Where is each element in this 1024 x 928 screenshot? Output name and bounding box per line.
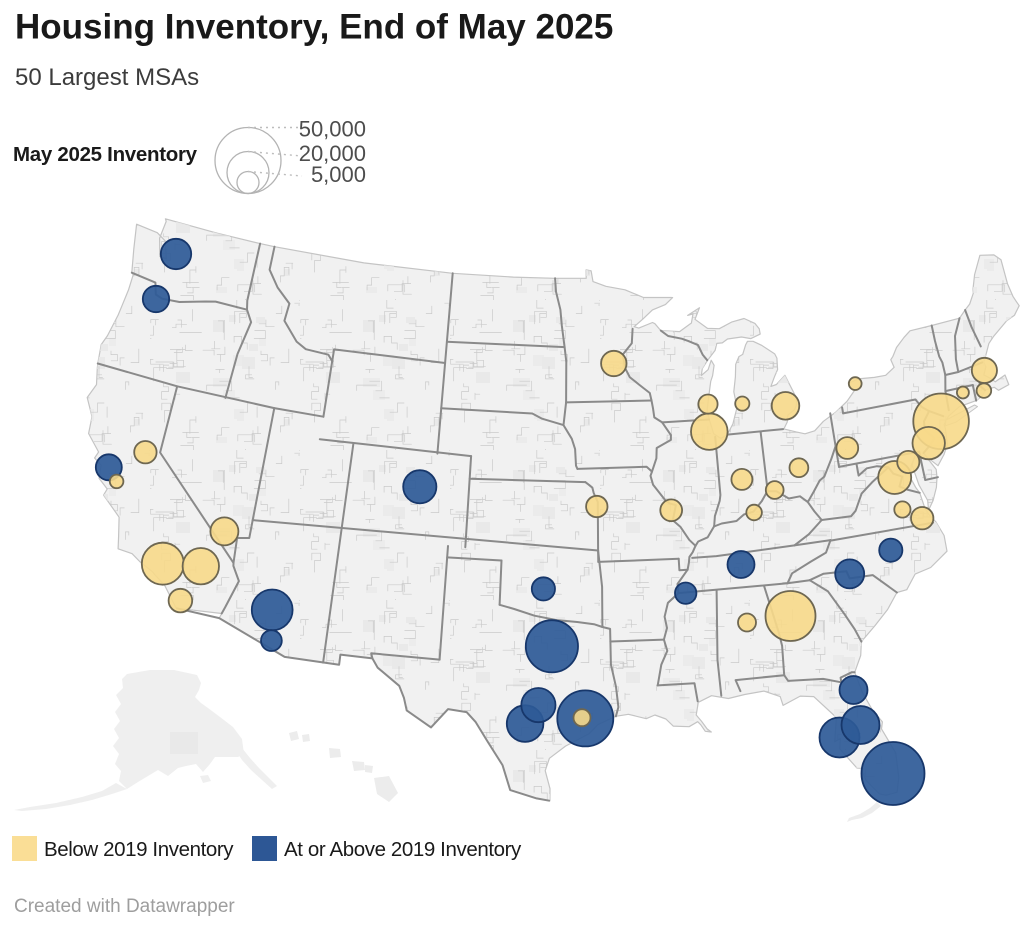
svg-text:Below 2019 Inventory: Below 2019 Inventory [44,838,234,861]
svg-text:5,000: 5,000 [311,162,366,187]
svg-text:50,000: 50,000 [299,117,366,142]
svg-text:At or Above 2019 Inventory: At or Above 2019 Inventory [284,838,522,861]
svg-text:Created with Datawrapper: Created with Datawrapper [14,896,235,917]
svg-text:Housing Inventory, End of May: Housing Inventory, End of May 2025 [15,8,613,47]
svg-text:May 2025 Inventory: May 2025 Inventory [13,143,198,166]
svg-text:50 Largest MSAs: 50 Largest MSAs [15,64,199,91]
